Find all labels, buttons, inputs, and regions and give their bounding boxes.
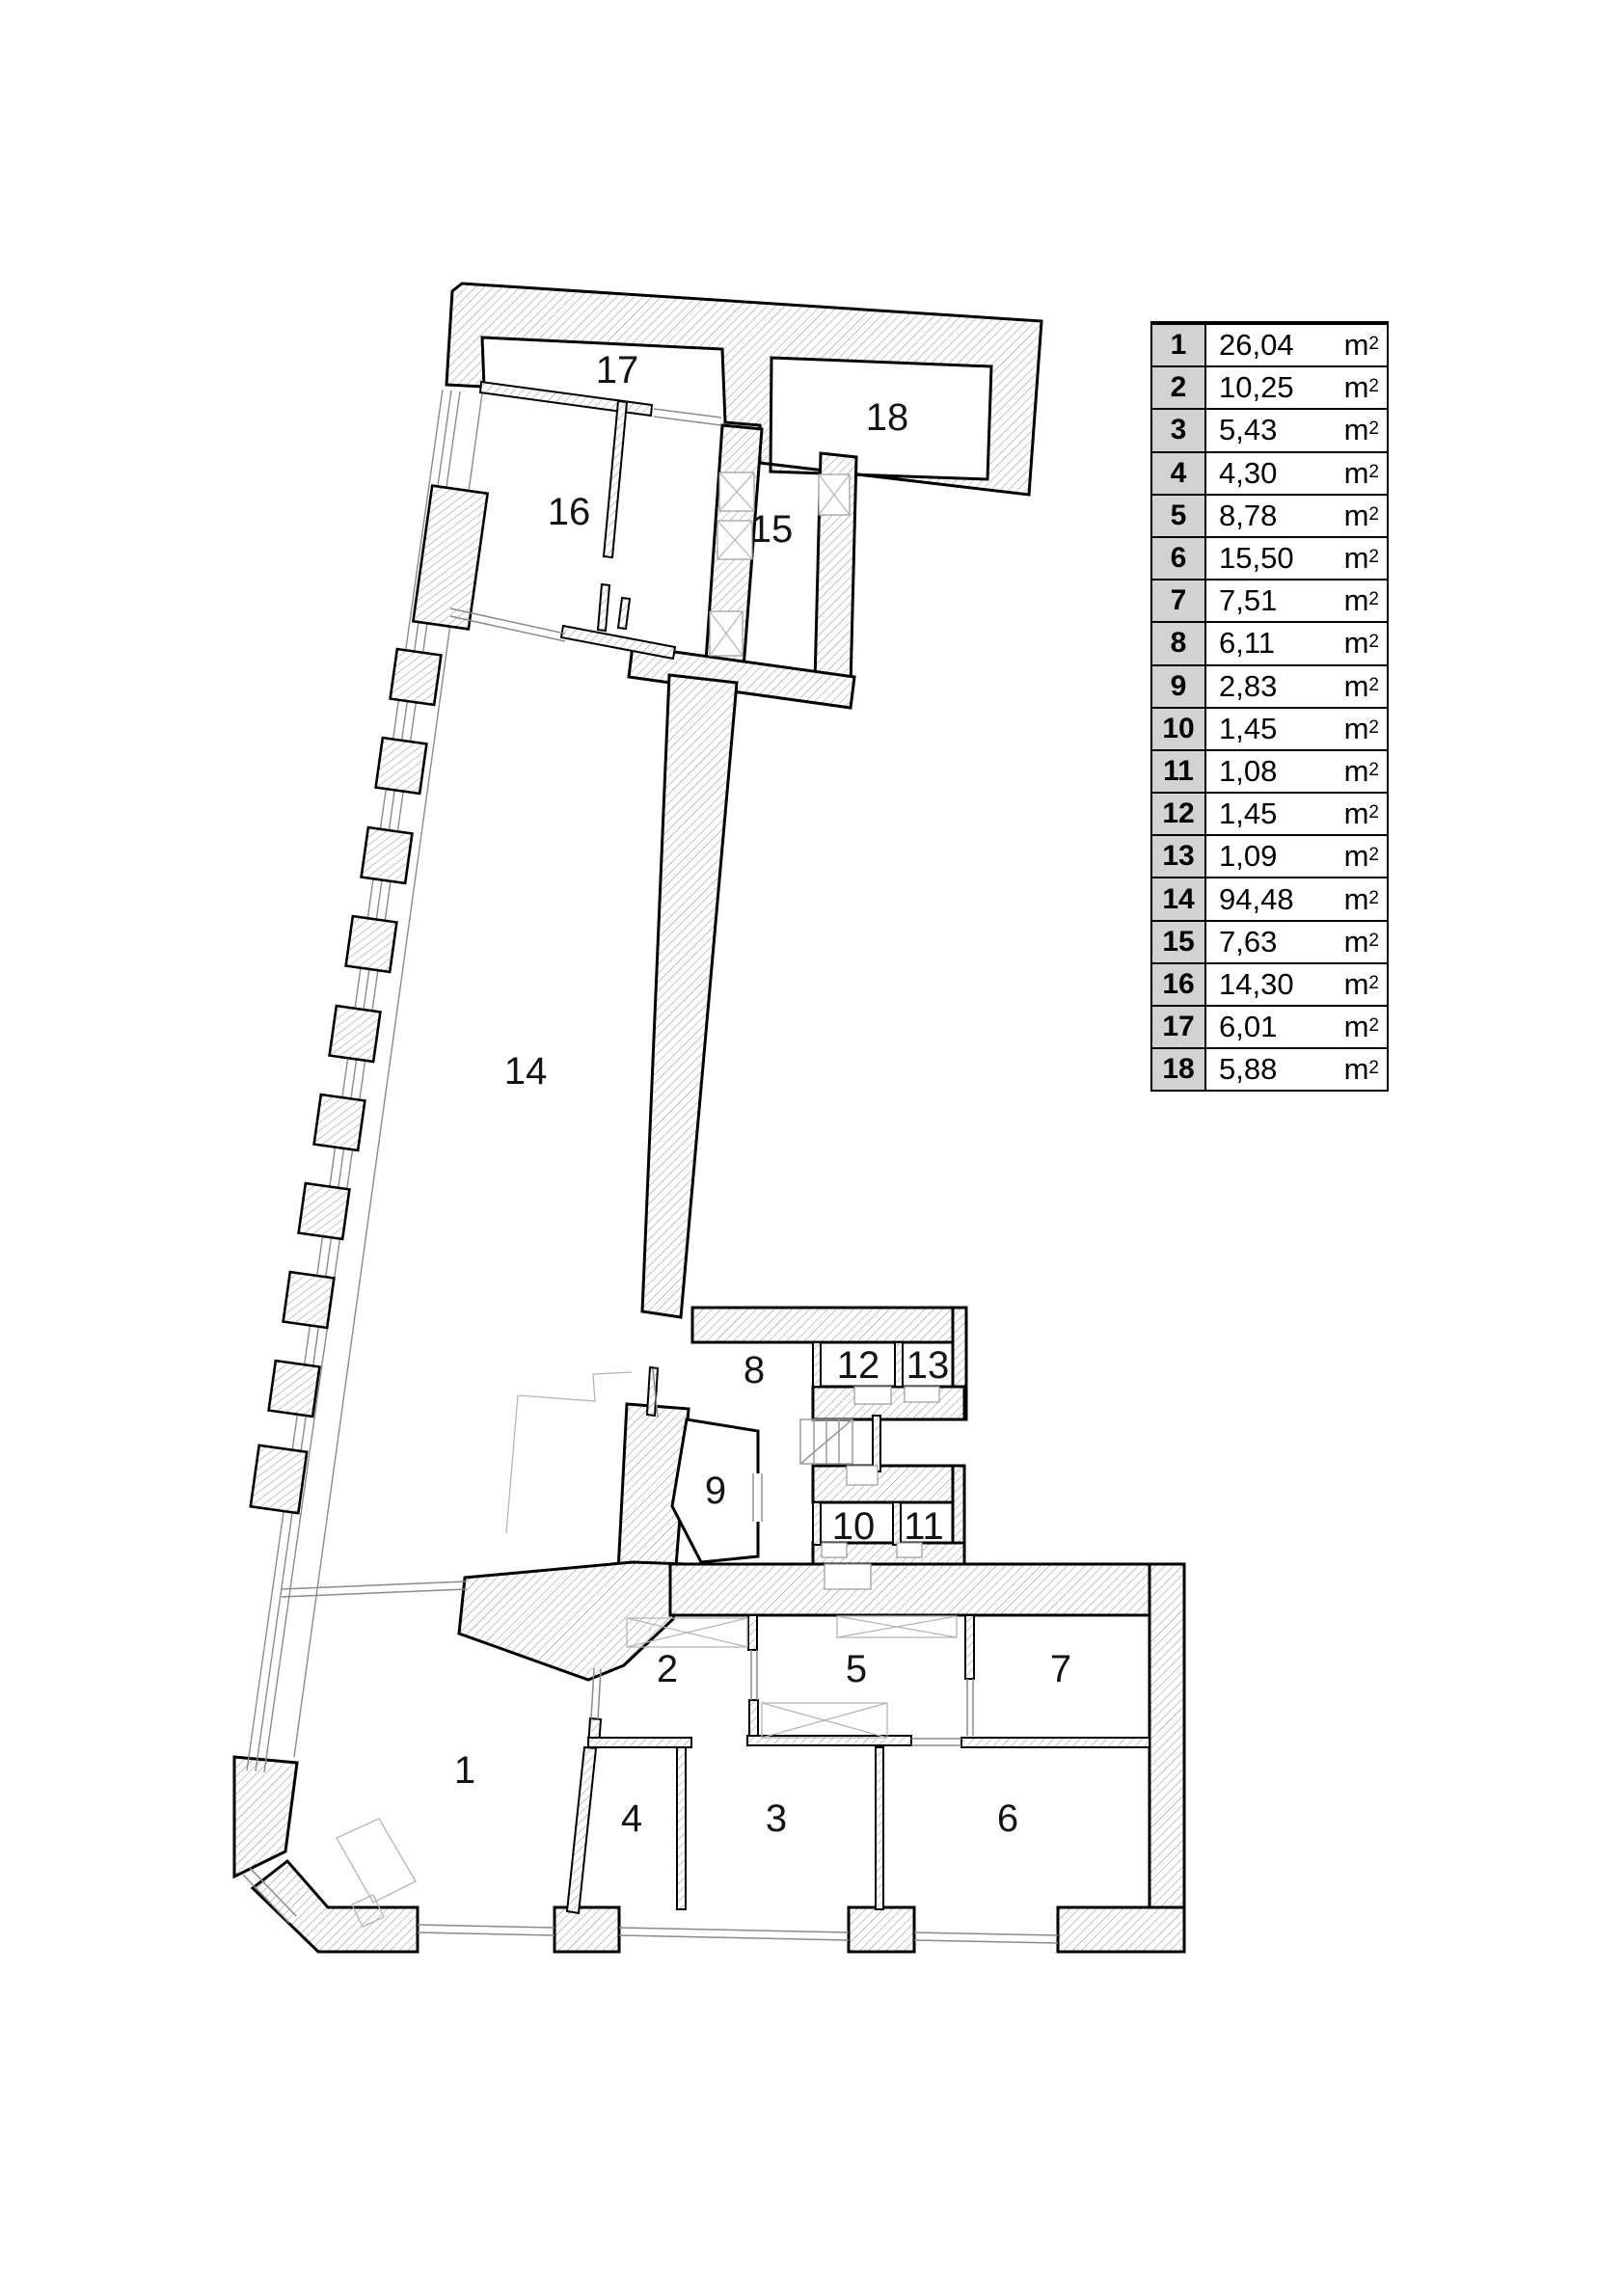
area-value: 26,04: [1219, 328, 1294, 363]
room-area-cell: 1,09 m2: [1206, 836, 1387, 877]
table-row: 3 5,43 m2: [1152, 408, 1387, 450]
room-number-cell: 7: [1152, 581, 1206, 621]
door-10-notch: [847, 1466, 878, 1485]
room-area-cell: 1,45 m2: [1206, 709, 1387, 749]
area-unit: m2: [1344, 754, 1379, 789]
wall-3-6-divider: [876, 1747, 883, 1909]
room-number-cell: 12: [1152, 794, 1206, 834]
wall-14-east: [642, 675, 737, 1317]
area-unit: m2: [1344, 839, 1379, 874]
area-value: 1,45: [1219, 797, 1277, 831]
wall-12-13-divider: [895, 1342, 903, 1387]
room-number-cell: 14: [1152, 878, 1206, 919]
room-label-6: 6: [997, 1797, 1018, 1840]
wall-bottom-pier-1: [555, 1907, 619, 1952]
room-area-cell: 6,01 m2: [1206, 1007, 1387, 1047]
facade-piers: [251, 486, 488, 1514]
room-area-cell: 7,51 m2: [1206, 581, 1387, 621]
door-13-notch: [905, 1387, 939, 1402]
table-row: 7 7,51 m2: [1152, 579, 1387, 621]
pier: [330, 1006, 381, 1062]
area-value: 8,78: [1219, 499, 1277, 533]
room-area-cell: 1,45 m2: [1206, 794, 1387, 834]
room-number-cell: 1: [1152, 325, 1206, 365]
room-area-cell: 7,63 m2: [1206, 922, 1387, 962]
area-unit: m2: [1344, 967, 1379, 1002]
area-unit: m2: [1344, 328, 1379, 363]
room-label-18: 18: [866, 396, 909, 439]
pier: [362, 827, 413, 883]
area-value: 7,51: [1219, 583, 1277, 618]
pier: [251, 1445, 307, 1513]
wall-16-bottom-stub: [618, 598, 630, 629]
room-label-14: 14: [504, 1050, 548, 1093]
table-row: 12 1,45 m2: [1152, 792, 1387, 834]
pier: [391, 649, 442, 705]
wall-10-11-top: [813, 1466, 964, 1502]
wall-12-west: [813, 1342, 821, 1387]
room-label-5: 5: [846, 1648, 867, 1690]
area-value: 94,48: [1219, 882, 1294, 917]
room-label-10: 10: [832, 1505, 876, 1548]
room-label-2: 2: [657, 1648, 678, 1690]
pier: [299, 1183, 350, 1239]
room-area-cell: 5,43 m2: [1206, 410, 1387, 450]
room-label-15: 15: [750, 508, 794, 551]
table-row: 16 14,30 m2: [1152, 962, 1387, 1005]
room-label-8: 8: [744, 1349, 765, 1391]
area-unit: m2: [1344, 499, 1379, 533]
area-table: 1 26,04 m2 2 10,25 m2 3 5,43 m2 4 4,30: [1150, 321, 1389, 1092]
room-area-cell: 4,30 m2: [1206, 453, 1387, 494]
wall-10-west: [813, 1502, 821, 1545]
area-value: 1,08: [1219, 754, 1277, 789]
area-value: 1,09: [1219, 839, 1277, 874]
staircase: [800, 1419, 852, 1464]
area-unit: m2: [1344, 541, 1379, 576]
area-value: 5,88: [1219, 1052, 1277, 1087]
room-area-cell: 2,83 m2: [1206, 666, 1387, 707]
table-row: 5 8,78 m2: [1152, 494, 1387, 536]
room-number-cell: 18: [1152, 1049, 1206, 1090]
room-label-7: 7: [1050, 1648, 1071, 1690]
area-unit: m2: [1344, 1010, 1379, 1044]
room-number-cell: 6: [1152, 538, 1206, 579]
room-area-cell: 14,30 m2: [1206, 964, 1387, 1005]
wall-16-15-divider-a: [604, 401, 627, 557]
pier: [376, 738, 427, 794]
room-number-cell: 3: [1152, 410, 1206, 450]
pier: [269, 1361, 320, 1417]
wall-4-west: [567, 1747, 596, 1913]
table-row: 1 26,04 m2: [1152, 323, 1387, 365]
room-label-3: 3: [766, 1797, 787, 1840]
room-number-cell: 2: [1152, 367, 1206, 408]
room-area-cell: 10,25 m2: [1206, 367, 1387, 408]
room-label-9: 9: [705, 1470, 726, 1512]
wall-chamfer-upper: [234, 1757, 297, 1877]
wall-east-lower: [1150, 1564, 1184, 1952]
room-number-cell: 9: [1152, 666, 1206, 707]
room-label-12: 12: [837, 1344, 880, 1387]
room-area-cell: 6,11 m2: [1206, 623, 1387, 663]
area-value: 5,43: [1219, 413, 1277, 447]
area-unit: m2: [1344, 797, 1379, 831]
area-value: 1,45: [1219, 712, 1277, 746]
area-value: 2,83: [1219, 669, 1277, 704]
wall-bottom-pier-2: [849, 1907, 914, 1952]
table-row: 13 1,09 m2: [1152, 834, 1387, 877]
area-unit: m2: [1344, 712, 1379, 746]
wall-chamfer-lower: [253, 1861, 418, 1952]
table-row: 4 4,30 m2: [1152, 451, 1387, 494]
room-area-cell: 26,04 m2: [1206, 325, 1387, 365]
wall-2-5-divider-a: [748, 1615, 757, 1650]
pier: [346, 916, 397, 972]
area-value: 10,25: [1219, 370, 1294, 405]
room-number-cell: 13: [1152, 836, 1206, 877]
room-area-cell: 15,50 m2: [1206, 538, 1387, 579]
area-value: 7,63: [1219, 925, 1277, 959]
area-unit: m2: [1344, 1052, 1379, 1087]
wall-10-11-divider: [893, 1502, 901, 1545]
wall-diagonal-band: [459, 1562, 689, 1680]
room-area-cell: 8,78 m2: [1206, 496, 1387, 536]
area-unit: m2: [1344, 626, 1379, 661]
room-label-11: 11: [904, 1505, 944, 1548]
wall-10-11-east: [953, 1466, 964, 1551]
pier: [284, 1272, 335, 1328]
room-number-cell: 16: [1152, 964, 1206, 1005]
table-row: 18 5,88 m2: [1152, 1047, 1387, 1090]
area-value: 4,30: [1219, 456, 1277, 491]
niche-5-top: [825, 1564, 871, 1589]
area-value: 14,30: [1219, 967, 1294, 1002]
area-unit: m2: [1344, 669, 1379, 704]
wall-2-5-divider-b: [749, 1700, 758, 1739]
area-value: 15,50: [1219, 541, 1294, 576]
area-unit: m2: [1344, 925, 1379, 959]
pier: [314, 1094, 365, 1150]
area-value: 6,01: [1219, 1010, 1277, 1044]
floor-plan-sheet: 1 2 3 4 5 6 7 8 9 10 11 12 13 14 15 16 1…: [0, 0, 1623, 2296]
wall-stair-east: [873, 1416, 880, 1472]
room-number-cell: 8: [1152, 623, 1206, 663]
wall-16-15-divider-b: [598, 584, 609, 631]
room-number-cell: 5: [1152, 496, 1206, 536]
room-label-1: 1: [454, 1749, 475, 1792]
door-12-notch: [854, 1387, 891, 1404]
wall-5-7-top-band: [670, 1564, 1154, 1615]
room-number-cell: 11: [1152, 751, 1206, 792]
room-label-4: 4: [621, 1797, 642, 1840]
table-row: 11 1,08 m2: [1152, 749, 1387, 792]
area-unit: m2: [1344, 413, 1379, 447]
room-number-cell: 15: [1152, 922, 1206, 962]
room-label-13: 13: [906, 1344, 950, 1387]
area-unit: m2: [1344, 882, 1379, 917]
wall-3-4-divider: [677, 1747, 686, 1909]
wall-6-top: [961, 1738, 1150, 1747]
room-label-16: 16: [548, 491, 591, 533]
area-unit: m2: [1344, 456, 1379, 491]
room-area-cell: 5,88 m2: [1206, 1049, 1387, 1090]
pier: [413, 486, 487, 630]
room-area-cell: 94,48 m2: [1206, 878, 1387, 919]
area-unit: m2: [1344, 370, 1379, 405]
area-unit: m2: [1344, 583, 1379, 618]
room-area-cell: 1,08 m2: [1206, 751, 1387, 792]
area-value: 6,11: [1219, 626, 1275, 661]
table-row: 6 15,50 m2: [1152, 536, 1387, 579]
table-row: 8 6,11 m2: [1152, 621, 1387, 663]
wall-8-top: [692, 1308, 964, 1342]
outer-walls: [234, 284, 1184, 1952]
wall-5-7-divider: [965, 1615, 974, 1679]
table-row: 10 1,45 m2: [1152, 707, 1387, 749]
wall-4-top: [588, 1738, 691, 1747]
room-label-17: 17: [596, 349, 639, 392]
table-row: 14 94,48 m2: [1152, 877, 1387, 919]
room-number-cell: 4: [1152, 453, 1206, 494]
wall-bottom-corner: [1058, 1907, 1184, 1952]
wall-16-bottom: [561, 626, 675, 659]
table-row: 15 7,63 m2: [1152, 920, 1387, 962]
room-number-cell: 17: [1152, 1007, 1206, 1047]
table-row: 2 10,25 m2: [1152, 365, 1387, 408]
table-row: 17 6,01 m2: [1152, 1005, 1387, 1047]
table-row: 9 2,83 m2: [1152, 664, 1387, 707]
room-number-cell: 10: [1152, 709, 1206, 749]
